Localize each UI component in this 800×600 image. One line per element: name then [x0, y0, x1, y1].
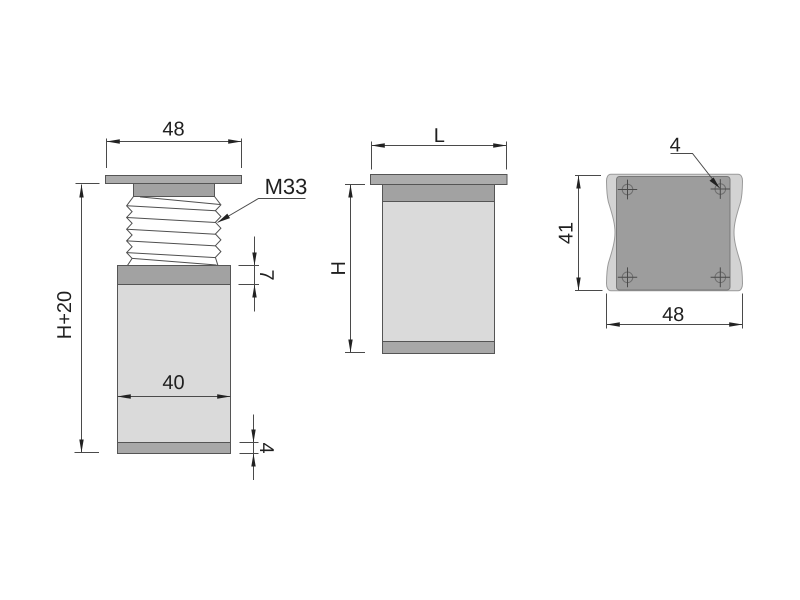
svg-text:40: 40	[162, 372, 184, 394]
svg-text:H: H	[328, 261, 350, 275]
svg-text:7: 7	[255, 269, 277, 280]
svg-text:4: 4	[670, 134, 681, 156]
svg-text:M33: M33	[265, 174, 308, 199]
svg-text:48: 48	[162, 119, 184, 141]
svg-text:4: 4	[255, 442, 277, 453]
svg-text:H+20: H+20	[54, 291, 76, 339]
svg-text:41: 41	[556, 222, 578, 244]
svg-text:L: L	[434, 125, 445, 147]
svg-text:48: 48	[662, 304, 684, 326]
